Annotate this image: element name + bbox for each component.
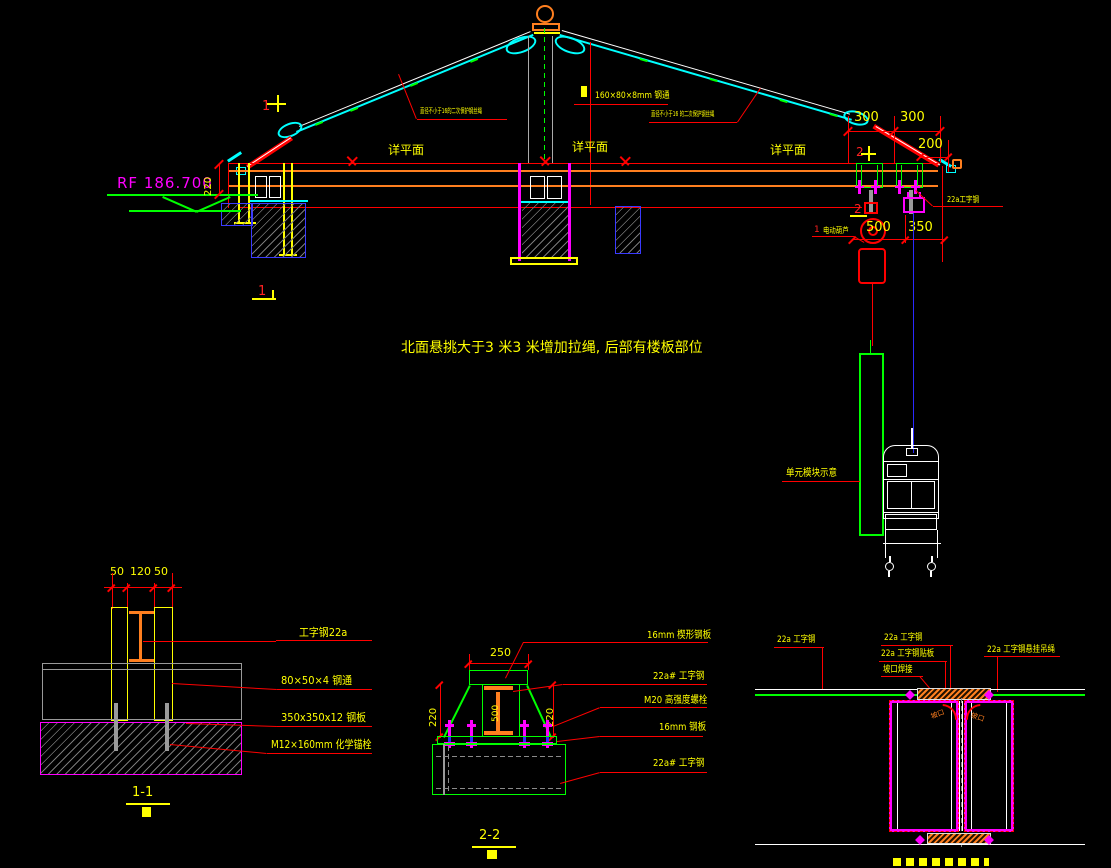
callout-suspension: 22a 工字钢悬挂吊绳	[987, 646, 1055, 655]
splice-plate-bottom	[927, 833, 991, 844]
callout-underline	[879, 661, 947, 662]
joint-line	[962, 701, 963, 831]
splice-plate-top	[917, 688, 991, 700]
callout-beam-mid: 22a 工字钢	[884, 634, 922, 643]
callout-leader	[822, 647, 823, 690]
callout-underline	[881, 676, 923, 677]
weld-wedge	[905, 690, 915, 700]
clipped-text	[893, 858, 989, 866]
callout-leader	[997, 656, 998, 692]
callout-groove-weld: 坡口焊接	[883, 666, 913, 675]
flange-inner-line	[897, 703, 898, 829]
joint-line	[959, 701, 960, 831]
callout-underline	[881, 645, 953, 646]
cad-drawing-canvas: 直径不小于16的二次保护钢丝绳 直径不小于16 的二次保护钢丝绳 160×80×…	[0, 0, 1111, 868]
callout-leader	[950, 645, 951, 692]
detail-splice: 22a 工字钢 22a 工字钢 22a 工字钢贴板 坡口焊接 22a 工字钢悬挂…	[0, 0, 1111, 868]
flange-inner-line	[1006, 703, 1007, 829]
callout-underline	[774, 647, 824, 648]
joint-centerline	[961, 698, 962, 848]
callout-doubler-plate: 22a 工字钢贴板	[881, 650, 934, 659]
callout-underline	[984, 656, 1060, 657]
callout-beam-left: 22a 工字钢	[777, 636, 815, 645]
